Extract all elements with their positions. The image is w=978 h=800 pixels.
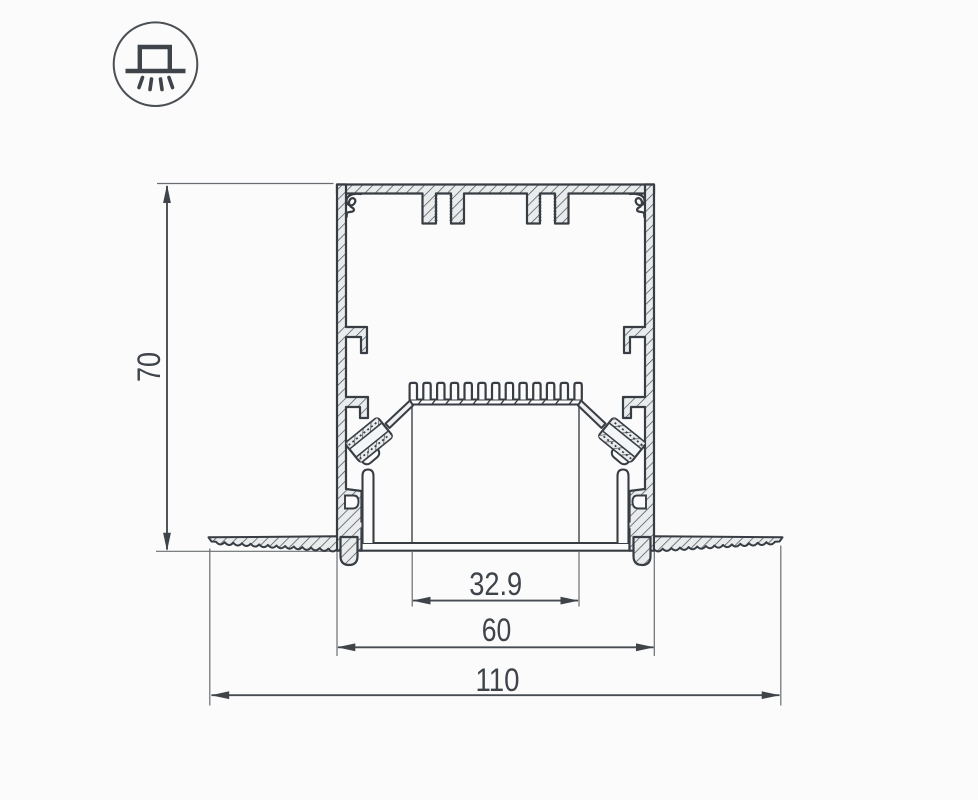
svg-text:60: 60 bbox=[482, 612, 512, 648]
svg-text:70: 70 bbox=[131, 352, 167, 382]
svg-text:110: 110 bbox=[476, 662, 520, 698]
svg-text:32.9: 32.9 bbox=[469, 566, 522, 602]
